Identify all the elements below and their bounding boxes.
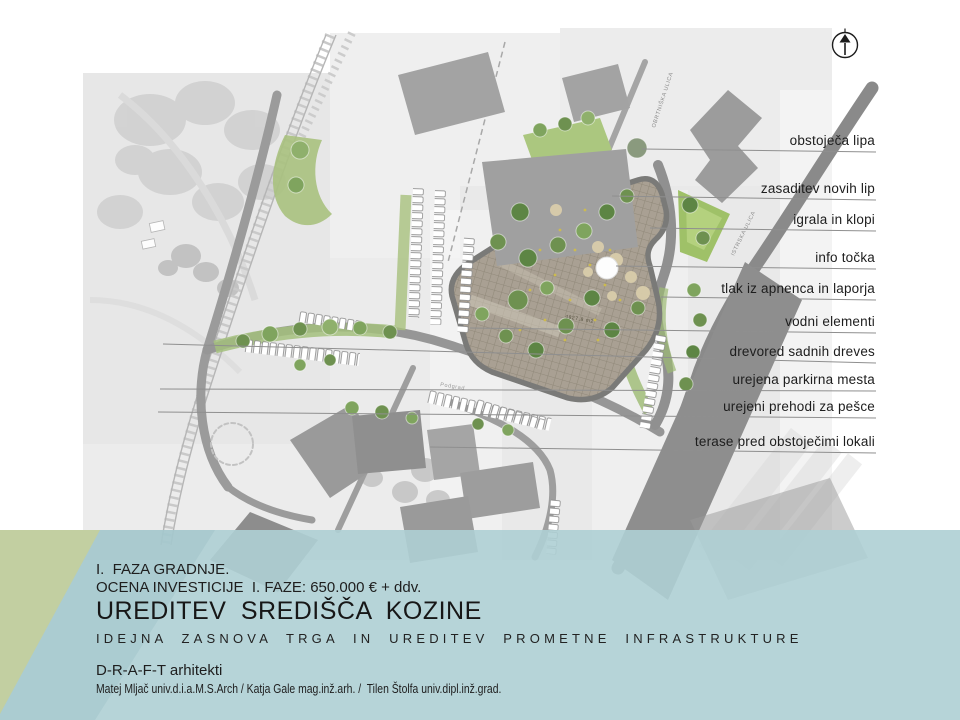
legend-label-drevored: drevored sadnih dreves bbox=[730, 344, 875, 359]
legend-label-parkirna-mesta: urejena parkirna mesta bbox=[733, 372, 875, 387]
info-point-marker bbox=[596, 257, 618, 279]
legend-label-prehodi: urejeni prehodi za pešce bbox=[723, 399, 875, 414]
legend-label-tlak: tlak iz apnenca in laporja bbox=[721, 281, 875, 296]
legend-label-terase: terase pred obstoječimi lokali bbox=[695, 434, 875, 449]
phase-line: I. FAZA GRADNJE. bbox=[96, 561, 229, 578]
page-subtitle: IDEJNA ZASNOVA TRGA IN UREDITEV PROMETNE… bbox=[96, 631, 803, 646]
studio-name: D-R-A-F-T arhitekti bbox=[96, 662, 222, 679]
legend-label-igrala-in-klopi: igrala in klopi bbox=[793, 212, 875, 227]
authors-line: Matej Mljač univ.d.i.a.M.S.Arch / Katja … bbox=[96, 681, 501, 696]
presentation-slide: OBRTNIŠKA ULICA ISTRSKA ULICA Podgrad 48… bbox=[0, 0, 960, 720]
investment-line: OCENA INVESTICIJE I. FAZE: 650.000 € + d… bbox=[96, 579, 421, 596]
page-title: UREDITEV SREDIŠČA KOZINE bbox=[96, 597, 482, 626]
legend-label-info-tocka: info točka bbox=[815, 250, 875, 265]
north-arrow-icon bbox=[833, 29, 858, 58]
legend-label-obstojeca-lipa: obstoječa lipa bbox=[790, 133, 875, 148]
legend-label-zasaditev-novih-lip: zasaditev novih lip bbox=[761, 181, 875, 196]
legend-label-vodni-elementi: vodni elementi bbox=[785, 314, 875, 329]
